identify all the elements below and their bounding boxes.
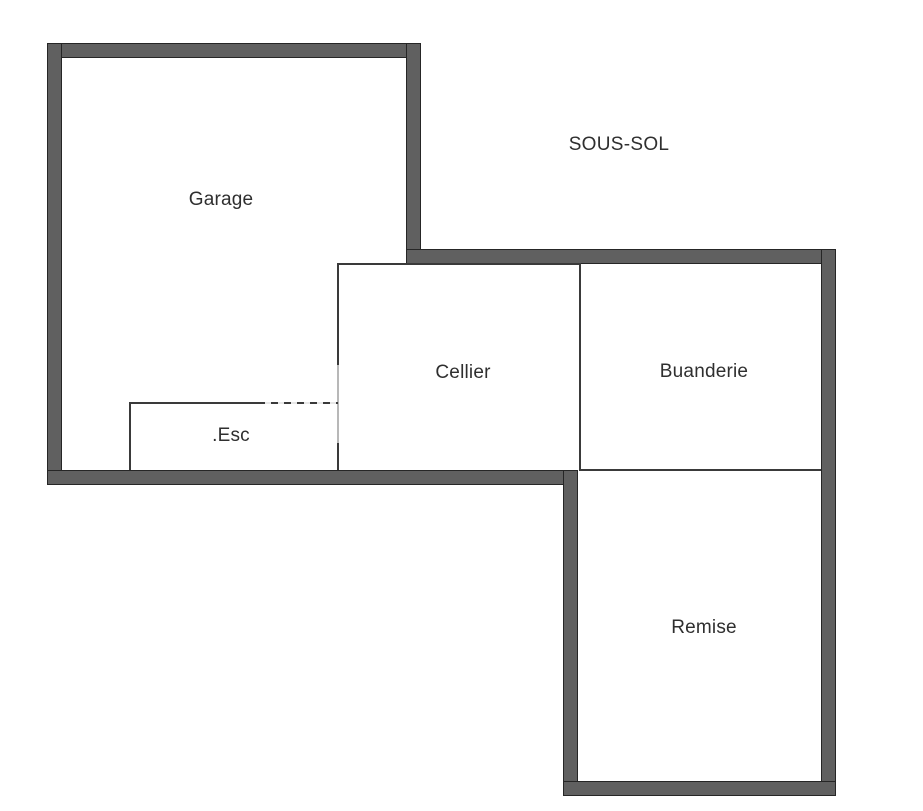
partition-esc-left [129,402,131,470]
room-label-remise: Remise [671,617,737,639]
wall-garage-right [406,43,421,264]
partition-cellier-top [337,263,581,265]
partition-cellier-left-opening [337,365,339,443]
room-label-buanderie: Buanderie [660,361,748,383]
wall-lower-left-bottom [47,470,578,485]
wall-left-outer [47,43,62,485]
partition-cellier-buanderie [579,263,581,471]
wall-upper-right-top [406,249,836,264]
partition-esc-top [129,402,258,404]
wall-right-outer [821,249,836,796]
wall-bottom-outer [563,781,836,796]
room-label-esc: .Esc [212,425,250,447]
room-label-cellier: Cellier [435,362,490,384]
floor-plan: SOUS-SOL Garage Cellier Buanderie .Esc R… [0,0,923,811]
wall-remise-left [563,470,578,796]
partition-buanderie-remise [579,469,821,471]
wall-garage-top [47,43,421,58]
partition-esc-top-dashed [258,402,338,404]
floor-title: SOUS-SOL [569,134,670,156]
room-label-garage: Garage [189,189,254,211]
